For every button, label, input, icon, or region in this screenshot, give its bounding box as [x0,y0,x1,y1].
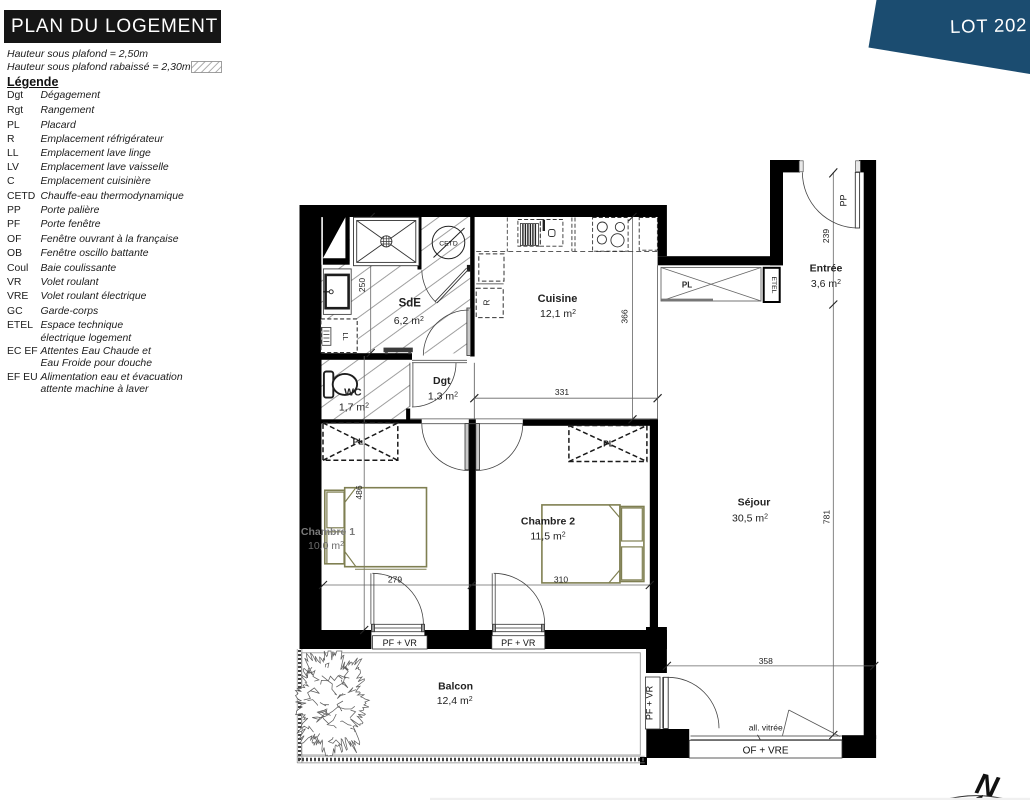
svg-text:all. vitrée: all. vitrée [749,723,783,733]
svg-text:PL: PL [353,437,364,447]
svg-text:279: 279 [388,575,402,585]
svg-text:PF + VR: PF + VR [645,685,655,720]
svg-text:R: R [482,300,492,306]
svg-text:366: 366 [620,309,630,323]
svg-text:1,3 m2: 1,3 m2 [428,390,458,402]
svg-text:CETD: CETD [439,240,458,247]
svg-text:WC: WC [344,387,362,399]
svg-text:PL: PL [603,439,614,449]
svg-text:SdE: SdE [399,298,422,310]
svg-text:Chambre 1: Chambre 1 [301,526,355,538]
svg-text:PL: PL [682,281,692,290]
svg-text:12,4 m2: 12,4 m2 [437,695,473,707]
svg-text:6,2 m2: 6,2 m2 [394,315,424,327]
svg-text:250: 250 [357,278,367,292]
svg-text:Entrée: Entrée [810,263,843,275]
svg-text:OF + VRE: OF + VRE [743,745,789,756]
svg-text:11,5 m2: 11,5 m2 [530,530,565,542]
svg-text:331: 331 [555,387,569,397]
svg-text:486: 486 [354,485,364,499]
svg-text:1,7 m2: 1,7 m2 [339,402,369,414]
svg-text:358: 358 [759,656,773,666]
svg-text:Séjour: Séjour [738,497,771,509]
svg-text:12,1 m2: 12,1 m2 [540,308,576,320]
svg-text:PF + VR: PF + VR [501,638,536,648]
svg-text:Dgt: Dgt [433,375,451,387]
svg-text:Chambre 2: Chambre 2 [521,516,575,528]
svg-text:781: 781 [822,510,832,524]
svg-text:ETEL: ETEL [770,277,777,294]
svg-text:PP: PP [838,194,848,206]
svg-text:LL: LL [341,332,350,340]
svg-text:310: 310 [554,575,568,585]
svg-text:239: 239 [821,229,831,243]
svg-text:3,6 m2: 3,6 m2 [811,278,841,290]
svg-text:Cuisine: Cuisine [538,293,578,305]
svg-text:30,5 m2: 30,5 m2 [732,513,768,525]
svg-text:PF + VR: PF + VR [383,638,418,648]
svg-text:10,0 m2: 10,0 m2 [308,540,344,552]
svg-text:Balcon: Balcon [438,681,473,693]
